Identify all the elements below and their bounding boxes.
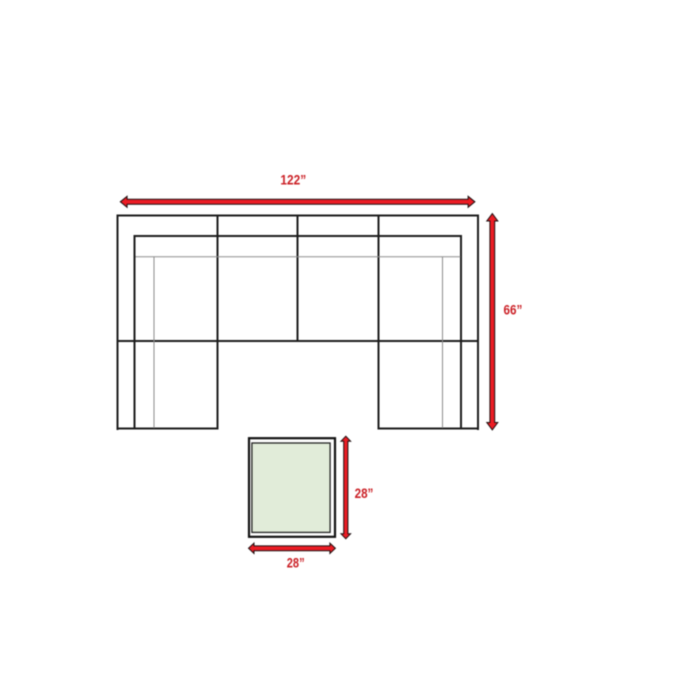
svg-text:66”: 66”: [504, 302, 523, 318]
svg-text:122”: 122”: [280, 172, 306, 188]
svg-text:28”: 28”: [287, 555, 305, 571]
svg-text:28”: 28”: [355, 485, 374, 501]
